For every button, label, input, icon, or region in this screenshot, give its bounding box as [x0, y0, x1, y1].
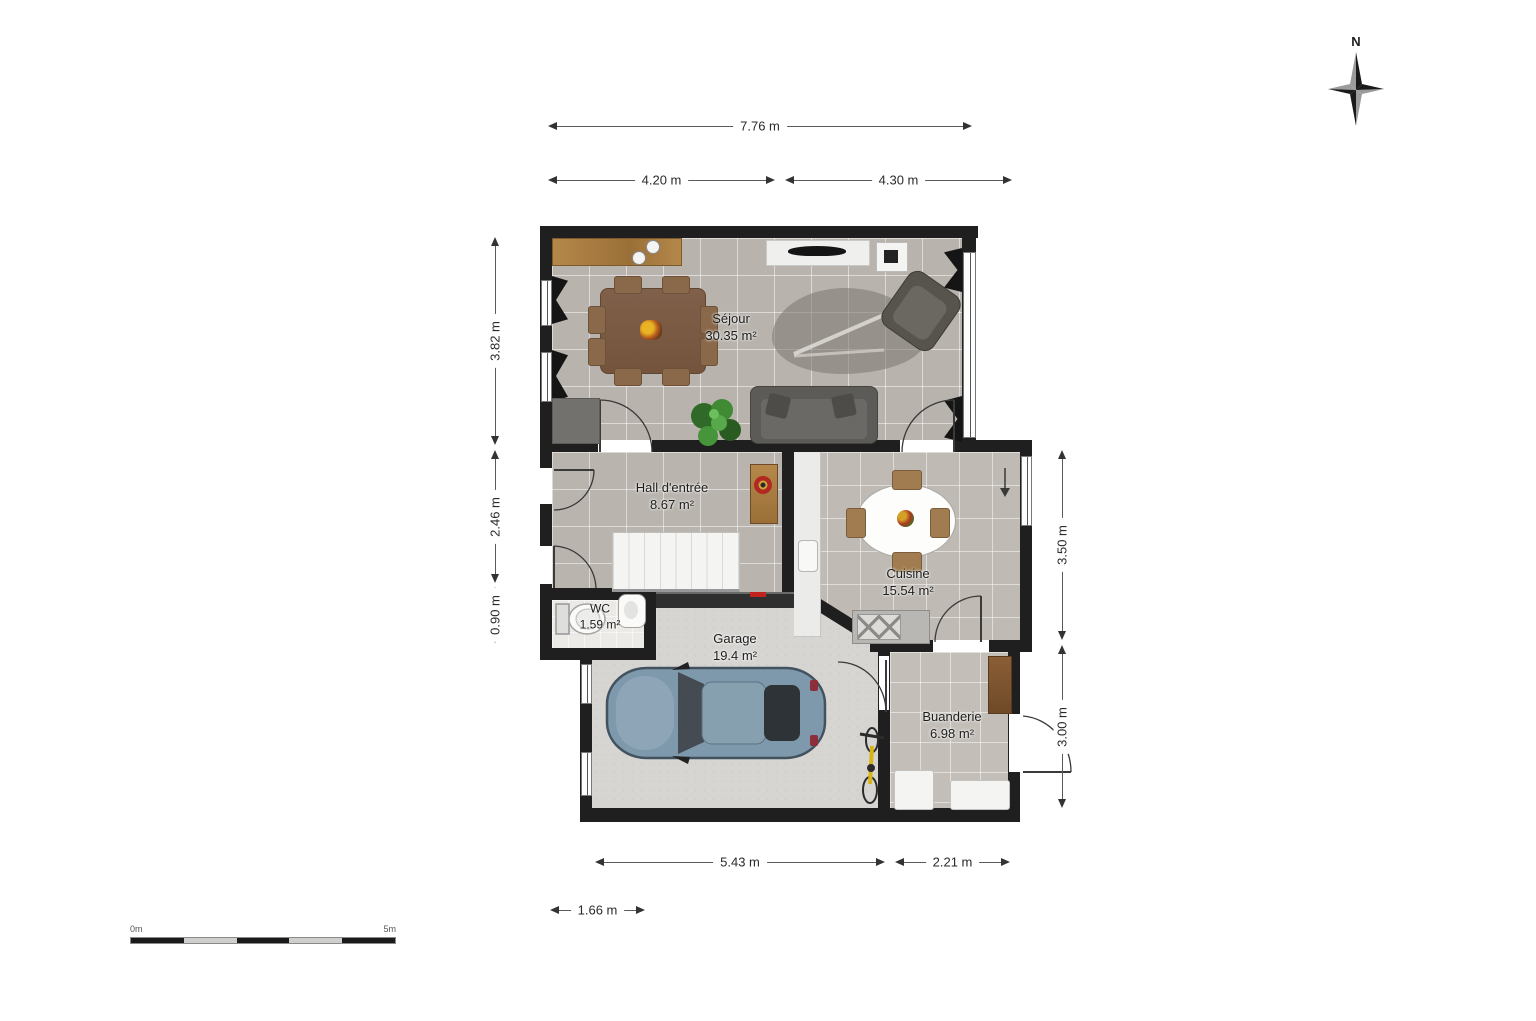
laundry-shelf: [988, 656, 1012, 714]
stove: [852, 610, 930, 644]
room-area: 15.54 m²: [882, 583, 933, 600]
dartboard-panel: [750, 464, 778, 524]
chair: [588, 306, 606, 334]
room-label-buanderie: Buanderie 6.98 m²: [922, 709, 981, 743]
dim-label: 2.46 m: [487, 490, 504, 544]
scale-end-label: 5m: [383, 924, 396, 934]
dim-label: 2.21 m: [926, 854, 980, 871]
sofa: [750, 386, 878, 444]
dim-bottom-221: 2.21 m: [895, 853, 1010, 871]
dim-top-776: 7.76 m: [548, 117, 972, 135]
fruit-bowl: [897, 510, 914, 527]
dim-top-430: 4.30 m: [785, 171, 1012, 189]
chair: [662, 276, 690, 294]
hall-entry-door-arc-2: [552, 544, 598, 590]
sejour-top-wall: [540, 226, 978, 238]
table-centerpiece: [640, 320, 662, 340]
hall-cuisine-wall: [782, 452, 794, 606]
dim-left-246: 2.46 m: [487, 450, 503, 583]
dim-top-420: 4.20 m: [548, 171, 775, 189]
garage-buanderie-door-arc: [838, 658, 888, 714]
kitchen-chair: [930, 508, 950, 538]
sejour-left-door-arc: [598, 398, 654, 454]
room-name: Garage: [713, 631, 757, 648]
chair: [662, 368, 690, 386]
dryer: [950, 780, 1010, 810]
dim-label: 3.50 m: [1054, 518, 1071, 572]
kitchen-chair: [846, 508, 866, 538]
room-name: WC: [580, 601, 621, 617]
room-name: Buanderie: [922, 709, 981, 726]
dim-label: 1.66 m: [571, 902, 625, 919]
room-name: Hall d'entrée: [636, 480, 709, 497]
sejour-left-window-2: [541, 352, 552, 402]
dim-right-350: 3.50 m: [1054, 450, 1070, 640]
room-label-garage: Garage 19.4 m²: [713, 631, 757, 665]
compass: N: [1324, 34, 1388, 128]
room-area: 6.98 m²: [922, 726, 981, 743]
buanderie-door-gap: [1009, 714, 1020, 772]
floor-plan: Séjour 30.35 m² Hall d'entrée 8.67 m² Cu…: [0, 0, 1536, 1021]
cuisine-right-window: [1021, 456, 1032, 526]
dim-left-090: 0.90 m: [487, 587, 503, 643]
room-name: Cuisine: [882, 566, 933, 583]
car: [604, 658, 828, 768]
scale-start-label: 0m: [130, 924, 143, 934]
dim-bottom-166: 1.66 m: [550, 901, 645, 919]
room-label-cuisine: Cuisine 15.54 m²: [882, 566, 933, 600]
room-area: 19.4 m²: [713, 648, 757, 665]
kitchen-chair: [892, 470, 922, 490]
room-area: 8.67 m²: [636, 497, 709, 514]
kitchen-sink: [798, 540, 818, 572]
compass-rose-icon: [1326, 50, 1386, 128]
tv-icon: [788, 246, 846, 256]
dim-label: 3.00 m: [1054, 700, 1071, 754]
entry-arrow-icon: [999, 468, 1011, 498]
room-area: 30.35 m²: [705, 328, 756, 345]
washing-machine: [894, 770, 934, 810]
dim-label: 3.82 m: [487, 314, 504, 368]
chair: [614, 368, 642, 386]
sejour-left-wall: [540, 226, 552, 452]
dartboard-icon: [754, 476, 772, 494]
hall-door-gap-1: [540, 468, 552, 504]
hall-entry-door-arc-1: [552, 468, 596, 512]
dim-bottom-543: 5.43 m: [595, 853, 885, 871]
room-label-hall: Hall d'entrée 8.67 m²: [636, 480, 709, 514]
room-name: Séjour: [705, 311, 756, 328]
garage-left-window-1: [581, 664, 592, 704]
wc-right-wall: [644, 588, 656, 660]
scale-bar-track: [130, 937, 396, 944]
dim-label: 4.20 m: [635, 172, 689, 189]
dim-label: 7.76 m: [733, 118, 787, 135]
sideboard: [552, 238, 682, 266]
garage-bottom-wall: [580, 808, 1020, 822]
room-area: 1.59 m²: [580, 617, 621, 633]
side-table-object: [884, 250, 898, 263]
sejour-right-window: [963, 252, 976, 438]
scale-bar: 0m 5m: [130, 924, 396, 948]
stairs: [612, 532, 740, 592]
dim-label: 5.43 m: [713, 854, 767, 871]
sideboard-bowl: [646, 240, 660, 254]
cabinet: [552, 398, 600, 444]
room-label-wc: WC 1.59 m²: [580, 601, 621, 632]
dim-label: 0.90 m: [487, 588, 504, 642]
plant-icon: [686, 396, 744, 448]
hall-door-gap-2: [540, 546, 552, 584]
sejour-left-window-1: [541, 280, 552, 326]
chair: [614, 276, 642, 294]
chair: [588, 338, 606, 366]
garage-left-window-2: [581, 752, 592, 796]
compass-north-label: N: [1351, 34, 1360, 49]
sejour-right-door-arc: [900, 398, 956, 454]
cuisine-door-arc: [933, 594, 983, 644]
wc-sink: [618, 594, 646, 628]
sideboard-bowl: [632, 251, 646, 265]
garage-wall-red-accent: [750, 592, 766, 597]
dim-left-382: 3.82 m: [487, 237, 503, 445]
dim-label: 4.30 m: [872, 172, 926, 189]
room-label-sejour: Séjour 30.35 m²: [705, 311, 756, 345]
bicycle-icon: [850, 726, 892, 806]
dim-right-300: 3.00 m: [1054, 645, 1070, 808]
